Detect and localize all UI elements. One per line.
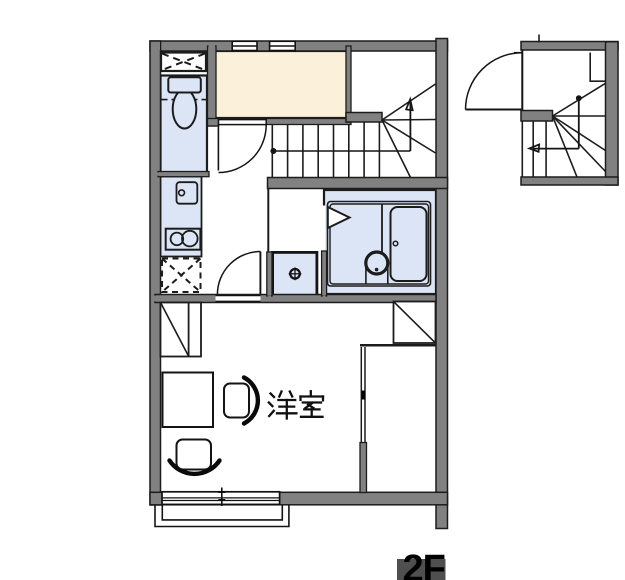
svg-text:2F: 2F bbox=[403, 548, 445, 580]
